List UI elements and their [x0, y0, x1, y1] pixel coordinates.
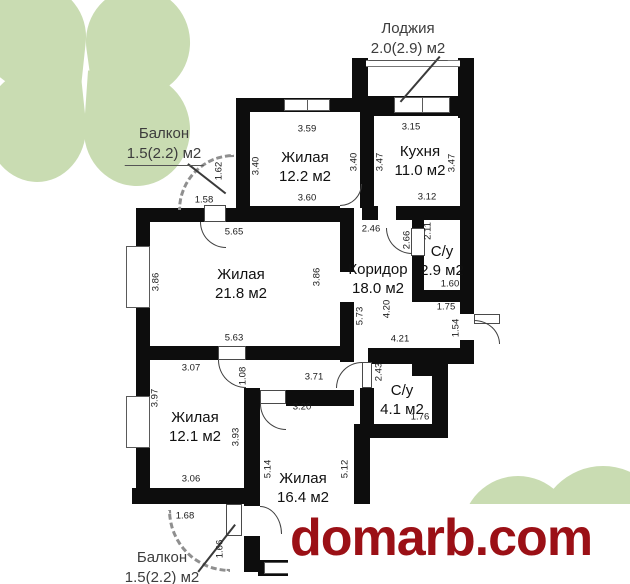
dimension: 4.21 [391, 334, 410, 345]
wall [226, 208, 354, 222]
loggia-railing [366, 60, 460, 67]
dimension: 3.86 [312, 268, 323, 287]
window [126, 246, 150, 308]
dimension: 3.15 [402, 122, 421, 133]
dimension: 5.12 [340, 460, 351, 479]
wall [360, 388, 374, 428]
watermark-text: domarb.com [290, 508, 592, 568]
dimension: 3.47 [375, 153, 386, 172]
dimension: 1.08 [238, 367, 249, 386]
dimension: 1.54 [451, 319, 462, 338]
dimension: 3.40 [349, 153, 360, 172]
door-arc [336, 362, 362, 388]
dimension: 1.76 [411, 412, 430, 423]
wall [246, 346, 354, 360]
dimension: 3.93 [231, 428, 242, 447]
room-name: Кухня [395, 142, 446, 161]
room-label-kitchen: Кухня 11.0 м2 [395, 142, 446, 180]
dimension: 2.66 [402, 231, 413, 250]
door-arc [200, 222, 226, 248]
dimension: 3.07 [182, 363, 201, 374]
dimension: 1.58 [195, 195, 214, 206]
wall [432, 348, 448, 430]
floorplan-page: Жилая 12.2 м2 Кухня 11.0 м2 Жилая 21.8 м… [0, 0, 630, 584]
wall [362, 206, 378, 220]
wall [132, 488, 248, 504]
dimension: 5.14 [263, 460, 274, 479]
loggia-label: Лоджия 2.0(2.9) м2 [369, 19, 448, 61]
dimension: 1.66 [215, 540, 226, 559]
room-name: С/у [420, 242, 464, 261]
room-name: С/у [380, 381, 424, 400]
dimension: 3.86 [151, 273, 162, 292]
dimension: 5.73 [355, 307, 366, 326]
dimension: 1.68 [176, 511, 195, 522]
room-label-corridor: Коридор 18.0 м2 [348, 260, 407, 298]
dimension: 2.46 [362, 224, 381, 235]
door-leaf [260, 390, 286, 404]
wall [236, 98, 250, 220]
room-area: 21.8 м2 [215, 284, 267, 303]
clover-leaf-decoration [0, 65, 92, 187]
wall [150, 208, 204, 222]
wall [354, 424, 448, 438]
dimension: 1.62 [214, 162, 225, 181]
wall [460, 116, 474, 218]
dimension: 4.20 [382, 300, 393, 319]
wall [368, 348, 474, 364]
room-area: 12.1 м2 [169, 427, 221, 446]
door-leaf [218, 346, 246, 360]
room-label-wc-2-9: С/у 2.9 м2 [420, 242, 464, 280]
room-name: Жилая [279, 148, 331, 167]
balcony-area: 1.5(2.2) м2 [125, 144, 204, 166]
room-name: Жилая [277, 469, 329, 488]
room-label-living-12-1: Жилая 12.1 м2 [169, 408, 221, 446]
room-label-living-21-8: Жилая 21.8 м2 [215, 265, 267, 303]
dimension: 3.71 [305, 372, 324, 383]
dimension: 3.97 [150, 389, 161, 408]
dimension: 3.59 [298, 124, 317, 135]
watermark-background: domarb.com [288, 504, 630, 584]
door-arc [340, 184, 362, 206]
room-label-living-12-2: Жилая 12.2 м2 [279, 148, 331, 186]
dimension: 3.20 [293, 402, 312, 413]
balcony-name: Балкон [123, 548, 202, 568]
window [126, 396, 150, 448]
loggia-area: 2.0(2.9) м2 [369, 39, 448, 61]
dimension: 3.06 [182, 474, 201, 485]
room-name: Жилая [215, 265, 267, 284]
room-name: Коридор [348, 260, 407, 279]
dimension: 3.12 [418, 192, 437, 203]
window [284, 99, 330, 111]
dimension: 3.40 [251, 157, 262, 176]
wall [354, 438, 370, 504]
balcony-area: 1.5(2.2) м2 [123, 568, 202, 584]
dimension: 2.11 [423, 222, 434, 240]
room-label-living-16-4: Жилая 16.4 м2 [277, 469, 329, 507]
room-area: 18.0 м2 [348, 279, 407, 298]
loggia-name: Лоджия [369, 19, 448, 39]
balcony-name: Балкон [125, 124, 204, 144]
dimension: 5.65 [225, 227, 244, 238]
dimension: 3.47 [447, 154, 458, 173]
balcony-top-label: Балкон 1.5(2.2) м2 [125, 124, 204, 166]
balcony-bottom-label: Балкон 1.5(2.2) м2 [123, 548, 202, 584]
room-area: 2.9 м2 [420, 261, 464, 280]
dimension: 5.63 [225, 333, 244, 344]
dimension: 1.60 [441, 279, 460, 290]
room-area: 12.2 м2 [279, 167, 331, 186]
door-leaf [362, 362, 372, 388]
door-arc [260, 404, 286, 430]
dimension: 2.43 [374, 363, 385, 382]
dimension: 3.60 [298, 193, 317, 204]
room-name: Жилая [169, 408, 221, 427]
wall [412, 364, 434, 376]
dimension: 1.75 [437, 302, 456, 313]
door-arc [260, 506, 282, 534]
room-area: 11.0 м2 [395, 161, 446, 180]
